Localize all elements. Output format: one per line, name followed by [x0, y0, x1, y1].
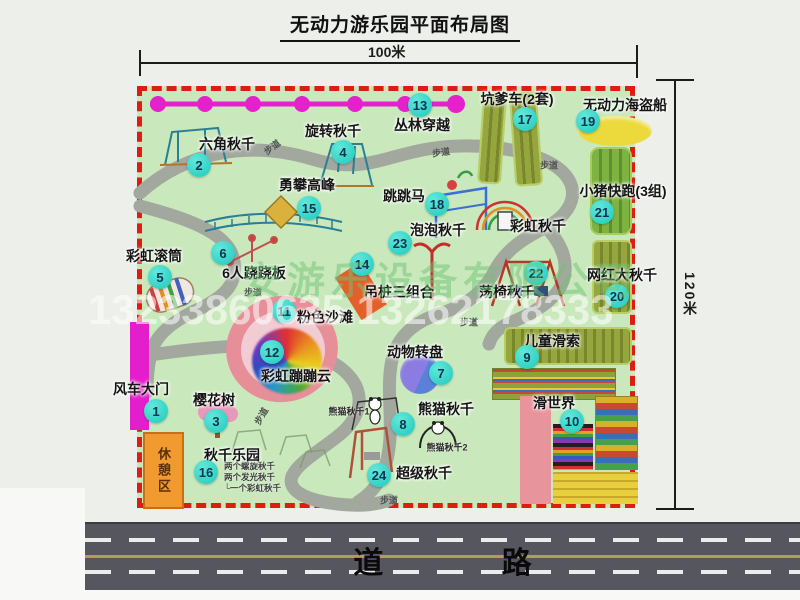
dimension-line-right: [674, 80, 676, 510]
item-badge-8: 8: [391, 412, 415, 436]
road: 道 路: [85, 522, 800, 590]
trail-label-6: 步道: [380, 494, 398, 507]
item-badge-6: 6: [211, 241, 235, 265]
item-label-15: 勇攀高峰: [279, 175, 335, 195]
item-badge-21: 21: [590, 200, 614, 224]
item-label-18: 跳跳马: [383, 186, 425, 206]
item-badge-15: 15: [297, 196, 321, 220]
item-badge-10: 10: [560, 409, 584, 433]
playground-plan: 无动力游乐园平面布局图 100米 120米: [0, 0, 800, 600]
item-badge-7: 7: [429, 361, 453, 385]
title-wrap: 无动力游乐园平面布局图: [0, 10, 800, 42]
item-badge-17: 17: [513, 107, 537, 131]
dimension-tick-left: [139, 50, 141, 76]
dimension-label-100m: 100米: [368, 42, 405, 62]
item-label-12: 彩虹蹦蹦云: [261, 366, 331, 386]
extra-label-1: 熊猫秋千1: [328, 405, 369, 418]
slide-world-wave: [553, 472, 638, 504]
item-badge-1: 1: [144, 399, 168, 423]
swing-park-notes: 两个螺旋秋千两个发光秋千└一个彩虹秋千: [224, 461, 281, 494]
item-label-4: 旋转秋千: [305, 121, 361, 141]
item-badge-12: 12: [260, 340, 284, 364]
item-badge-19: 19: [576, 109, 600, 133]
road-label: 道 路: [85, 538, 800, 582]
dimension-label-120m: 120米: [680, 272, 700, 317]
item-label-17: 坑爹车(2套): [480, 89, 553, 109]
swing-park-note-2: └一个彩虹秋千: [224, 483, 281, 494]
item-badge-13: 13: [408, 93, 432, 117]
trail-label-1: 步道: [431, 144, 451, 159]
trail-label-2: 步道: [540, 159, 558, 172]
dimension-line-top: [140, 62, 638, 64]
item-badge-24: 24: [367, 463, 391, 487]
item-label-24: 超级秋千: [396, 463, 452, 483]
margin-left: [0, 488, 85, 600]
page-title: 无动力游乐园平面布局图: [280, 10, 520, 42]
item-label-7: 动物转盘: [387, 342, 443, 362]
slide-world-checker: [595, 396, 638, 470]
dimension-tick-right: [636, 45, 638, 78]
item-label-1: 风车大门: [113, 379, 169, 399]
item-label-13: 丛林穿越: [394, 115, 450, 135]
extra-label-2: 熊猫秋千2: [426, 441, 467, 454]
extra-label-0: 彩虹秋千: [510, 216, 566, 236]
item-badge-2: 2: [187, 153, 211, 177]
item-label-2: 六角秋千: [199, 134, 255, 154]
watermark-phone: 13233860635 13262178333: [88, 286, 614, 334]
item-label-23: 泡泡秋千: [410, 220, 466, 240]
swing-park-note-1: 两个发光秋千: [224, 472, 281, 483]
rest-area-label: 休憩区: [154, 446, 173, 494]
item-badge-9: 9: [515, 345, 539, 369]
rest-area: 休憩区: [143, 432, 184, 509]
dimension-tick-top: [656, 79, 694, 81]
item-label-5: 彩虹滚筒: [126, 246, 182, 266]
item-label-3: 樱花树: [193, 390, 235, 410]
item-label-8: 熊猫秋千: [418, 399, 474, 419]
item-badge-3: 3: [204, 409, 228, 433]
dimension-tick-bottom: [656, 508, 694, 510]
item-badge-16: 16: [194, 460, 218, 484]
item-badge-18: 18: [425, 192, 449, 216]
item-badge-4: 4: [331, 140, 355, 164]
item-label-21: 小猪快跑(3组): [579, 181, 666, 201]
